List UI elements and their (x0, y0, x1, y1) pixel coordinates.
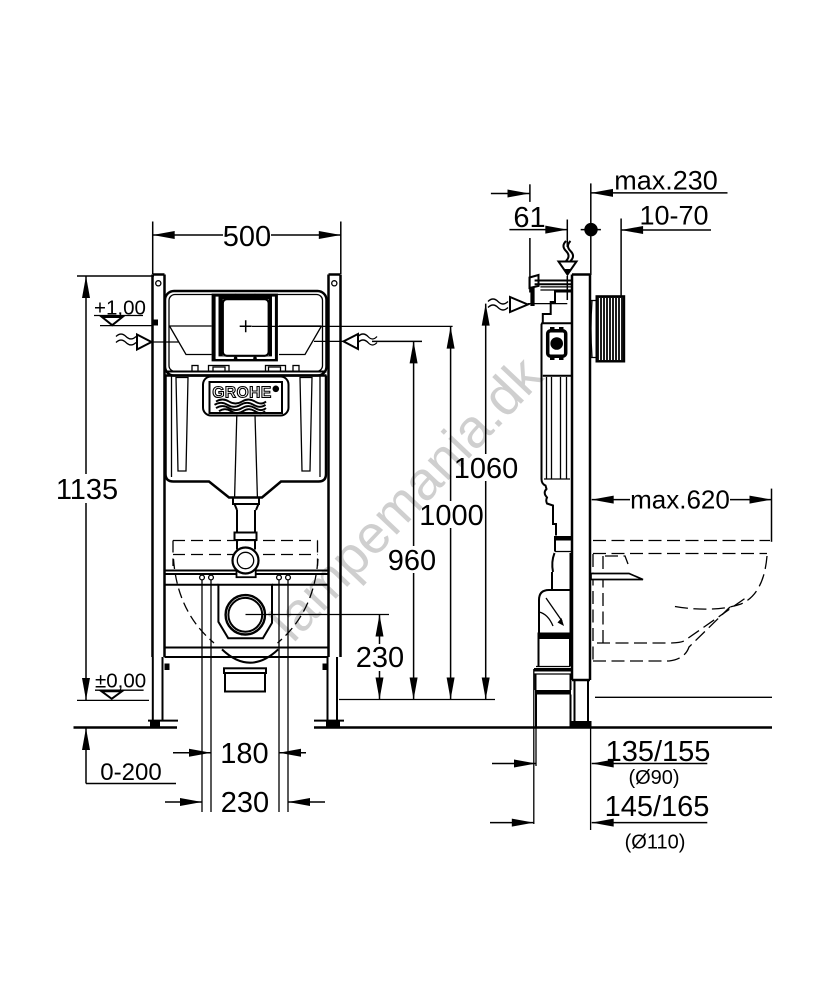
svg-text:230: 230 (356, 642, 404, 674)
svg-text:1060: 1060 (454, 453, 519, 485)
svg-text:1000: 1000 (419, 500, 484, 532)
svg-text:0-200: 0-200 (100, 759, 161, 786)
svg-text:±0,00: ±0,00 (95, 670, 146, 693)
svg-text:145/165: 145/165 (605, 791, 710, 823)
svg-text:960: 960 (388, 545, 436, 577)
svg-text:10-70: 10-70 (639, 201, 708, 231)
svg-text:1135: 1135 (56, 474, 118, 506)
svg-text:500: 500 (223, 221, 271, 253)
svg-text:230: 230 (221, 787, 269, 819)
svg-text:135/155: 135/155 (606, 736, 711, 768)
svg-text:max.620: max.620 (630, 485, 730, 515)
svg-text:180: 180 (220, 738, 268, 770)
svg-text:(Ø90): (Ø90) (628, 767, 679, 789)
svg-text:(Ø110): (Ø110) (625, 832, 686, 854)
svg-text:max.230: max.230 (614, 166, 718, 196)
